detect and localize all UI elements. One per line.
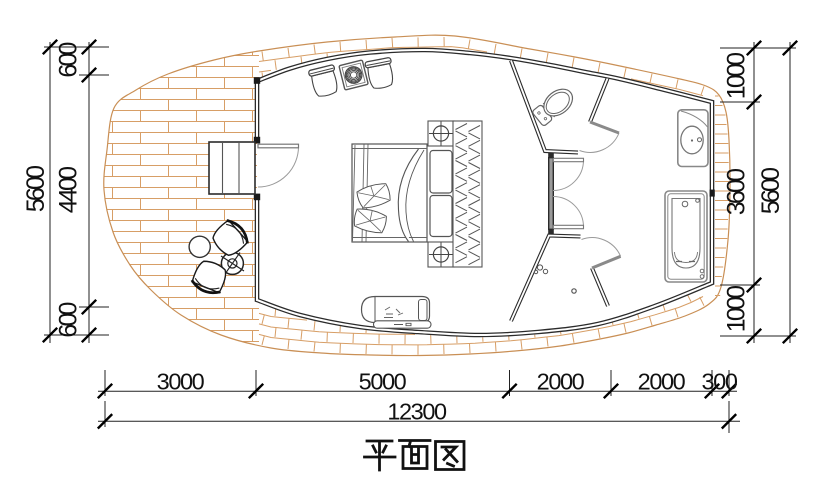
svg-text:1000: 1000 (723, 286, 751, 332)
svg-text:600: 600 (55, 42, 83, 77)
svg-text:1000: 1000 (723, 53, 751, 99)
svg-text:2000: 2000 (537, 369, 585, 395)
svg-text:5600: 5600 (22, 166, 50, 212)
svg-text:300: 300 (701, 369, 737, 395)
svg-text:3600: 3600 (723, 169, 751, 215)
svg-text:600: 600 (55, 302, 83, 337)
svg-text:4400: 4400 (55, 167, 83, 213)
svg-text:5600: 5600 (757, 168, 785, 214)
svg-text:5000: 5000 (359, 369, 407, 395)
svg-text:12300: 12300 (387, 399, 447, 425)
svg-text:3000: 3000 (157, 369, 205, 395)
svg-text:2000: 2000 (638, 369, 686, 395)
